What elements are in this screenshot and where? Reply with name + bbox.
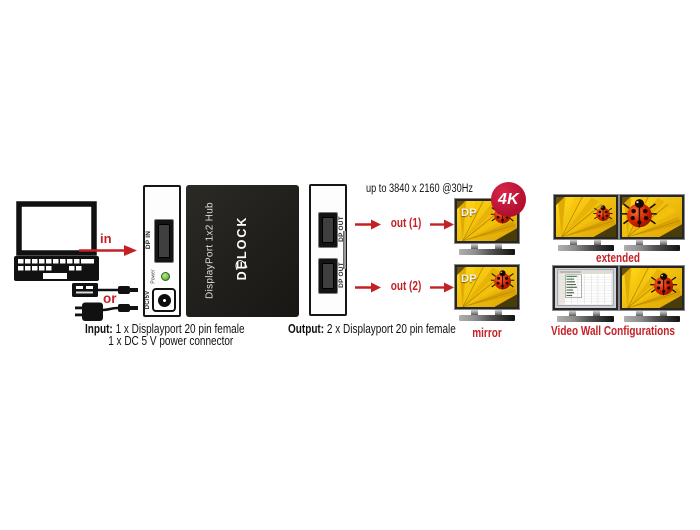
out2-arrow-left-icon [355,282,382,293]
dp-in-label: DP IN [144,225,152,255]
delock-logo-swoosh [234,214,250,282]
monitor-frame [554,195,618,239]
hub-model-text: DisplayPort 1x2 Hub [204,191,217,311]
monitor-videowall-right [620,266,684,324]
dp-overlay: DP [461,207,477,219]
in-arrow-icon [78,244,138,257]
monitor-stand-base [624,316,680,322]
out1-label: out (1) [387,216,425,230]
output-spec-item: 2 x Displayport 20 pin female [327,322,456,336]
flower-screen-image [556,197,616,237]
monitor-stand-base [459,249,515,255]
flower-screen-image [622,268,682,308]
input-specs: Input: 1 x Displayport 20 pin female 1 x… [85,323,245,348]
or-label: or [103,291,117,306]
dp-out-port-1 [318,212,338,248]
monitor-extended-right [620,195,684,253]
output-specs: Output: 2 x Displayport 20 pin female [288,323,456,335]
out2-label: out (2) [387,279,425,293]
monitor-videowall-left [553,266,618,324]
out1-arrow-right-icon [430,219,455,230]
laptop-icon [12,196,102,284]
power-led-label: Power [150,265,157,289]
monitor-stand-base [557,316,614,322]
delock-logo: DELOCK [234,214,250,282]
diagram-canvas: in or DP IN Power DC/5V DisplayPort 1 [0,0,700,530]
hub-output-panel [309,184,347,316]
monitor-frame [620,195,684,239]
output-slot [343,231,346,269]
dp-overlay: DP [461,273,477,285]
input-specs-line2: 1 x DC 5 V power connector [85,335,245,347]
monitor-stand-base [459,315,515,321]
resolution-note: up to 3840 x 2160 @30Hz [366,183,473,195]
monitor-frame [553,266,618,310]
monitor-out2-frame: DP [455,265,519,309]
flower-screen-image [622,197,682,237]
video-wall-label: Video Wall Configurations [541,324,685,338]
dc-jack [152,288,176,312]
monitor-out2: DP [455,265,519,323]
dc-jack-label: DC/5V [144,286,152,314]
output-specs-label: Output: [288,322,324,336]
badge-4k: 4K [491,182,526,217]
dp-in-port [154,219,174,263]
monitor-frame [620,266,684,310]
dp-out-port-2 [318,258,338,294]
power-led [161,272,170,281]
extended-label: extended [578,251,658,265]
input-spec-item: 1 x DC 5 V power connector [108,334,233,348]
out2-arrow-right-icon [430,282,455,293]
mirror-label: mirror [455,326,519,340]
monitor-extended-left [554,195,618,253]
out1-arrow-left-icon [355,219,382,230]
spreadsheet-screen-image [555,268,616,308]
